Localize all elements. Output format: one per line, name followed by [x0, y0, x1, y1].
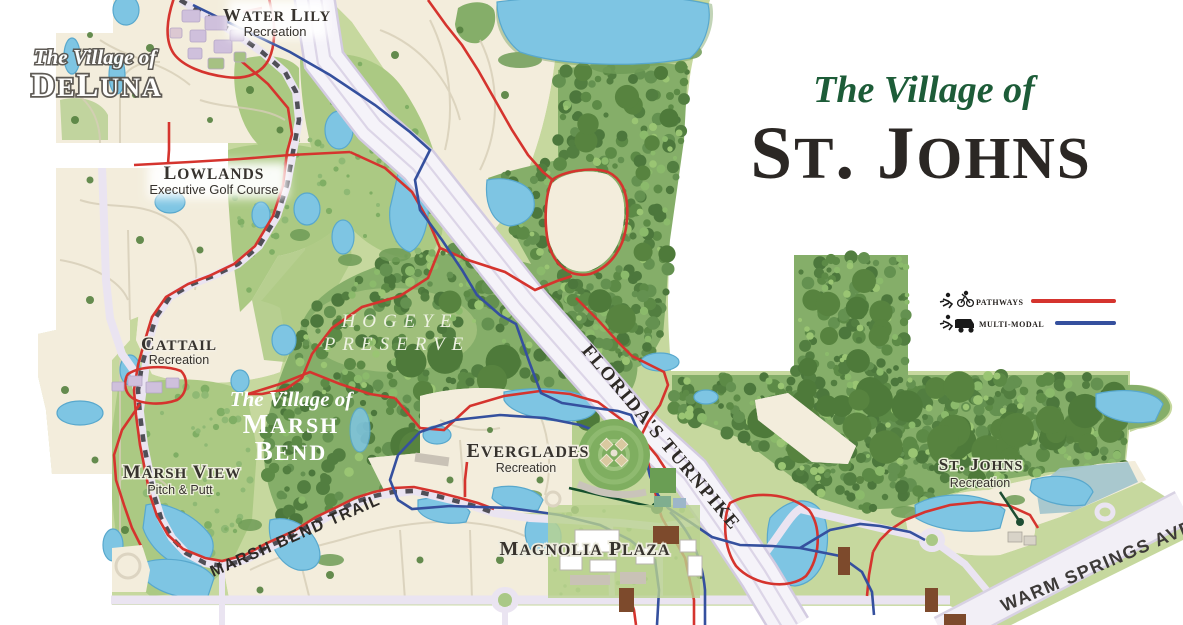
svg-text:MARSH: MARSH	[243, 409, 340, 439]
svg-text:EVERGLADES: EVERGLADES	[467, 440, 590, 462]
svg-text:Pitch & Putt: Pitch & Putt	[147, 483, 213, 497]
svg-text:CATTAIL: CATTAIL	[141, 334, 217, 355]
svg-text:Executive Golf Course: Executive Golf Course	[149, 182, 278, 197]
svg-text:PRESERVE: PRESERVE	[323, 334, 470, 355]
svg-text:BEND: BEND	[255, 436, 327, 466]
svg-text:Recreation: Recreation	[496, 461, 556, 475]
svg-text:Recreation: Recreation	[950, 476, 1010, 490]
svg-text:Recreation: Recreation	[149, 353, 209, 367]
svg-text:DELUNA: DELUNA	[31, 68, 163, 104]
svg-text:Recreation: Recreation	[244, 24, 307, 39]
svg-text:MAGNOLIA PLAZA: MAGNOLIA PLAZA	[499, 538, 670, 560]
svg-text:ST. JOHNS: ST. JOHNS	[750, 112, 1091, 195]
svg-text:The Village of: The Village of	[34, 45, 159, 69]
svg-text:LOWLANDS: LOWLANDS	[164, 163, 265, 184]
svg-text:MULTI-MODAL: MULTI-MODAL	[979, 320, 1044, 329]
svg-text:MARSH VIEW: MARSH VIEW	[123, 462, 242, 483]
svg-text:The Village of: The Village of	[813, 69, 1038, 111]
svg-text:The Village of: The Village of	[230, 387, 355, 411]
svg-text:PATHWAYS: PATHWAYS	[976, 298, 1023, 307]
svg-text:HOGEYE: HOGEYE	[341, 311, 459, 332]
